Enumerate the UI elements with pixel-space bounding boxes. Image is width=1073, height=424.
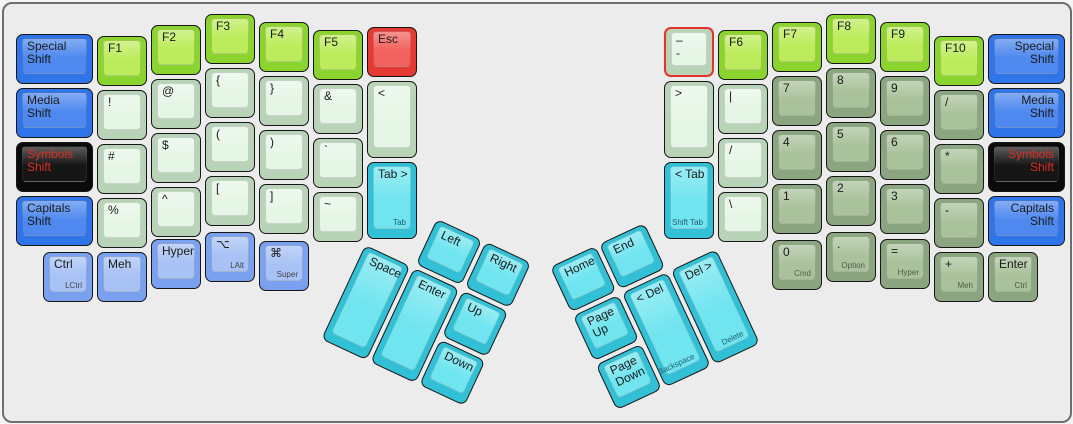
key-label: Space	[367, 255, 398, 279]
key-label: (	[216, 128, 244, 141]
key-label: $	[162, 139, 190, 152]
key-label: F2	[162, 31, 190, 44]
key-esc[interactable]: Esc	[367, 27, 417, 77]
key-f8[interactable]: F8	[826, 14, 876, 64]
keycap-face: .Option	[832, 236, 870, 272]
keycap-face: ^	[157, 191, 195, 227]
key-pipe[interactable]: |	[718, 84, 768, 134]
key-exclamation[interactable]: !	[97, 90, 147, 140]
keycap-face: (	[211, 126, 249, 162]
key-sublabel: Ctrl	[1015, 281, 1027, 290]
keycap-face: &	[319, 88, 357, 124]
key-label: Right	[488, 252, 519, 276]
keycap-face: Home	[557, 252, 607, 301]
keycap-face: F5	[319, 34, 357, 70]
keycap-face: SymbolsShift	[994, 146, 1059, 182]
key-dash-selected[interactable]: –-	[664, 27, 714, 77]
keycap-face: SpecialShift	[22, 38, 87, 74]
key-label: !	[108, 96, 136, 109]
key-f5[interactable]: F5	[313, 30, 363, 80]
key-label: 4	[783, 136, 811, 149]
key-sublabel: Meh	[957, 281, 973, 290]
key-brace-open[interactable]: {	[205, 68, 255, 118]
keycap-face: =Hyper	[886, 243, 924, 279]
keycap-face: !	[103, 94, 141, 130]
key-sublabel: Super	[277, 270, 298, 279]
keycap-face: F4	[265, 26, 303, 62]
keycap-face: 7	[778, 80, 816, 116]
key-f9[interactable]: F9	[880, 22, 930, 72]
keycap-face: \	[724, 196, 762, 232]
key-label: CapitalsShift	[27, 202, 82, 228]
keycap-face: @	[157, 83, 195, 119]
key-f10[interactable]: F10	[934, 36, 984, 86]
keycap-face: -	[940, 202, 978, 238]
key-label: F3	[216, 20, 244, 33]
key-super[interactable]: ⌘Super	[259, 241, 309, 291]
key-capitals-shift-left[interactable]: CapitalsShift	[16, 196, 93, 246]
keycap-face: F6	[724, 34, 762, 70]
key-label: /	[945, 96, 973, 109]
keycap-face: {	[211, 72, 249, 108]
keycap-face: 8	[832, 72, 870, 108]
keyboard-canvas: SpecialShiftMediaShiftSymbolsShiftCapita…	[2, 2, 1072, 423]
key-label: @	[162, 85, 190, 98]
keycap-face: CtrlLCtrl	[49, 256, 87, 292]
keycap-face: +Meh	[940, 256, 978, 292]
key-less-than[interactable]: <	[367, 81, 417, 158]
keycap-face: SymbolsShift	[22, 146, 87, 182]
key-brace-close[interactable]: }	[259, 76, 309, 126]
key-sublabel: Hyper	[898, 268, 919, 277]
key-sublabel: Cmd	[794, 269, 811, 278]
key-num-6[interactable]: 6	[880, 130, 930, 180]
keycap-face: ]	[265, 188, 303, 224]
key-lalt[interactable]: ⌥LAlt	[205, 232, 255, 282]
key-label: }	[270, 82, 298, 95]
keycap-face: 4	[778, 134, 816, 170]
key-enter-right[interactable]: EnterCtrl	[988, 252, 1038, 302]
keycap-face: 2	[832, 180, 870, 216]
keycap-face: )	[265, 134, 303, 170]
keycap-face: $	[157, 137, 195, 173]
key-label: F5	[324, 36, 352, 49]
keycap-face: CapitalsShift	[22, 200, 87, 236]
key-label: ^	[162, 193, 190, 206]
key-label: ]	[270, 190, 298, 203]
key-label: 2	[837, 182, 865, 195]
key-label: PageUp	[585, 305, 621, 340]
keycap-face: CapitalsShift	[994, 200, 1059, 236]
key-label: Hyper	[162, 245, 190, 258]
keycap-face: [	[211, 180, 249, 216]
key-label: F1	[108, 42, 136, 55]
key-label: \	[729, 198, 757, 211]
key-label: 9	[891, 82, 919, 95]
keycap-face: %	[103, 202, 141, 238]
keycap-face: |	[724, 88, 762, 124]
key-label: 6	[891, 136, 919, 149]
keycap-face: Meh	[103, 256, 141, 292]
key-label: +	[945, 258, 973, 271]
keycap-face: ~	[319, 196, 357, 232]
keycap-face: F2	[157, 29, 195, 65]
key-bracket-open[interactable]: [	[205, 176, 255, 226]
key-symbols-shift-right[interactable]: SymbolsShift	[988, 142, 1065, 192]
key-sublabel: Backspace	[657, 352, 696, 377]
key-label: 0	[783, 246, 811, 259]
key-label: 7	[783, 82, 811, 95]
key-f3[interactable]: F3	[205, 14, 255, 64]
key-lctrl[interactable]: CtrlLCtrl	[43, 252, 93, 302]
key-label: &	[324, 90, 352, 103]
key-f1[interactable]: F1	[97, 36, 147, 86]
key-label: Left	[439, 229, 470, 253]
key-label: Tab >	[378, 168, 406, 181]
key-label: [	[216, 182, 244, 195]
keycap-face: F3	[211, 18, 249, 54]
keycap-face: 1	[778, 188, 816, 224]
key-ampersand[interactable]: &	[313, 84, 363, 134]
key-paren-close[interactable]: )	[259, 130, 309, 180]
keycap-face: 9	[886, 80, 924, 116]
keycap-face: }	[265, 80, 303, 116]
key-label: ⌘	[270, 247, 298, 260]
key-label: F7	[783, 28, 811, 41]
keycap-face: *	[940, 148, 978, 184]
keycap-face: SpecialShift	[994, 38, 1059, 74]
keycap-face: EnterCtrl	[994, 256, 1032, 292]
key-label: /	[729, 144, 757, 157]
key-hyper-left[interactable]: Hyper	[151, 239, 201, 289]
keycap-face: F1	[103, 40, 141, 76]
keycap-face: F7	[778, 26, 816, 62]
keycap-face: >	[670, 85, 708, 148]
key-num-7[interactable]: 7	[772, 76, 822, 126]
keycap-face: Up	[452, 297, 502, 346]
key-label: F9	[891, 28, 919, 41]
key-label: -	[945, 204, 973, 217]
key-num-1[interactable]: 1	[772, 184, 822, 234]
key-at-sign[interactable]: @	[151, 79, 201, 129]
key-f7[interactable]: F7	[772, 22, 822, 72]
key-caret[interactable]: ^	[151, 187, 201, 237]
key-sublabel: LAlt	[230, 261, 244, 270]
key-special-shift-left[interactable]: SpecialShift	[16, 34, 93, 84]
key-backslash[interactable]: \	[718, 192, 768, 242]
key-num-0[interactable]: 0Cmd	[772, 240, 822, 290]
keycap-face: Left	[425, 225, 475, 274]
keycap-face: PageDown	[603, 350, 653, 399]
key-num-dot[interactable]: .Option	[826, 232, 876, 282]
keycap-face: F8	[832, 18, 870, 54]
keycap-face: Right	[474, 248, 524, 297]
key-label: MediaShift	[27, 94, 82, 120]
key-tilde[interactable]: ~	[313, 192, 363, 242]
keycap-face: F10	[940, 40, 978, 76]
key-label: < Tab	[675, 168, 703, 181]
key-f6[interactable]: F6	[718, 30, 768, 80]
key-label: Up	[465, 301, 496, 325]
key-label: 8	[837, 74, 865, 87]
key-label: MediaShift	[999, 94, 1054, 120]
key-media-shift-right[interactable]: MediaShift	[988, 88, 1065, 138]
key-label: 1	[783, 190, 811, 203]
key-label: Esc	[378, 33, 406, 46]
key-label: %	[108, 204, 136, 217]
keyboard-layout-stage: SpecialShiftMediaShiftSymbolsShiftCapita…	[0, 0, 1073, 424]
key-label: SymbolsShift	[999, 148, 1054, 174]
keycap-face: 5	[832, 126, 870, 162]
key-label: <	[378, 87, 406, 100]
key-label: < Del	[634, 282, 665, 306]
keycap-face: PageUp	[580, 301, 630, 350]
key-media-shift-left[interactable]: MediaShift	[16, 88, 93, 138]
keycap-face: Esc	[373, 31, 411, 67]
keycap-face: End	[606, 229, 656, 278]
key-num-8[interactable]: 8	[826, 68, 876, 118]
keycap-face: /	[724, 142, 762, 178]
key-paren-open[interactable]: (	[205, 122, 255, 172]
key-num-3[interactable]: 3	[880, 184, 930, 234]
keycap-face: Down	[429, 346, 479, 395]
key-label: ⌥	[216, 238, 244, 251]
key-label: >	[675, 87, 703, 100]
keycap-face: <	[373, 85, 411, 148]
key-hash[interactable]: #	[97, 144, 147, 194]
key-minus[interactable]: -	[934, 198, 984, 248]
key-meh[interactable]: Meh	[97, 252, 147, 302]
keycap-face: ⌘Super	[265, 245, 303, 281]
key-label: #	[108, 150, 136, 163]
key-label: )	[270, 136, 298, 149]
key-f2[interactable]: F2	[151, 25, 201, 75]
key-label: Enter	[999, 258, 1027, 271]
key-label: `	[324, 144, 352, 157]
key-label: Home	[563, 256, 594, 280]
key-label: .	[837, 238, 865, 251]
key-label: ~	[324, 198, 352, 211]
keycap-face: Hyper	[157, 243, 195, 279]
keycap-face: 6	[886, 134, 924, 170]
keycap-face: –-	[671, 32, 707, 66]
key-num-4[interactable]: 4	[772, 130, 822, 180]
keycap-face: /	[940, 94, 978, 130]
key-label: |	[729, 90, 757, 103]
key-label: F4	[270, 28, 298, 41]
key-bracket-close[interactable]: ]	[259, 184, 309, 234]
key-numpad-slash[interactable]: /	[934, 90, 984, 140]
key-label: F10	[945, 42, 973, 55]
keycap-face: MediaShift	[22, 92, 87, 128]
keycap-face: ⌥LAlt	[211, 236, 249, 272]
key-label: SymbolsShift	[27, 148, 82, 174]
key-label: F8	[837, 20, 865, 33]
key-label: 3	[891, 190, 919, 203]
key-label: Ctrl	[54, 258, 82, 271]
key-label: *	[945, 150, 973, 163]
keycap-face: 3	[886, 188, 924, 224]
key-label: SpecialShift	[27, 40, 82, 66]
key-label: 5	[837, 128, 865, 141]
key-dollar[interactable]: $	[151, 133, 201, 183]
key-num-9[interactable]: 9	[880, 76, 930, 126]
key-label: –-	[676, 34, 702, 60]
key-equals[interactable]: =Hyper	[880, 239, 930, 289]
keycap-face: MediaShift	[994, 92, 1059, 128]
key-special-shift-right[interactable]: SpecialShift	[988, 34, 1065, 84]
key-label: SpecialShift	[999, 40, 1054, 66]
key-label: Meh	[108, 258, 136, 271]
key-greater-than[interactable]: >	[664, 81, 714, 158]
key-asterisk[interactable]: *	[934, 144, 984, 194]
key-sublabel: Delete	[720, 329, 745, 347]
key-label: {	[216, 74, 244, 87]
key-sublabel: Option	[841, 261, 865, 270]
key-symbols-shift-left[interactable]: SymbolsShift	[16, 142, 93, 192]
key-label: Down	[442, 350, 473, 374]
keycap-face: 0Cmd	[778, 244, 816, 280]
key-f4[interactable]: F4	[259, 22, 309, 72]
key-label: End	[611, 233, 642, 257]
keycap-face: `	[319, 142, 357, 178]
key-label: PageDown	[608, 354, 644, 389]
keycap-face: #	[103, 148, 141, 184]
key-num-2[interactable]: 2	[826, 176, 876, 226]
key-plus[interactable]: +Meh	[934, 252, 984, 302]
key-backtick[interactable]: `	[313, 138, 363, 188]
key-label: F6	[729, 36, 757, 49]
key-label: CapitalsShift	[999, 202, 1054, 228]
key-slash[interactable]: /	[718, 138, 768, 188]
key-label: Enter	[416, 278, 447, 302]
key-sublabel: LCtrl	[65, 281, 82, 290]
keycap-face: F9	[886, 26, 924, 62]
key-label: =	[891, 245, 919, 258]
key-label: Del >	[683, 259, 714, 283]
key-percent[interactable]: %	[97, 198, 147, 248]
key-num-5[interactable]: 5	[826, 122, 876, 172]
key-capitals-shift-right[interactable]: CapitalsShift	[988, 196, 1065, 246]
